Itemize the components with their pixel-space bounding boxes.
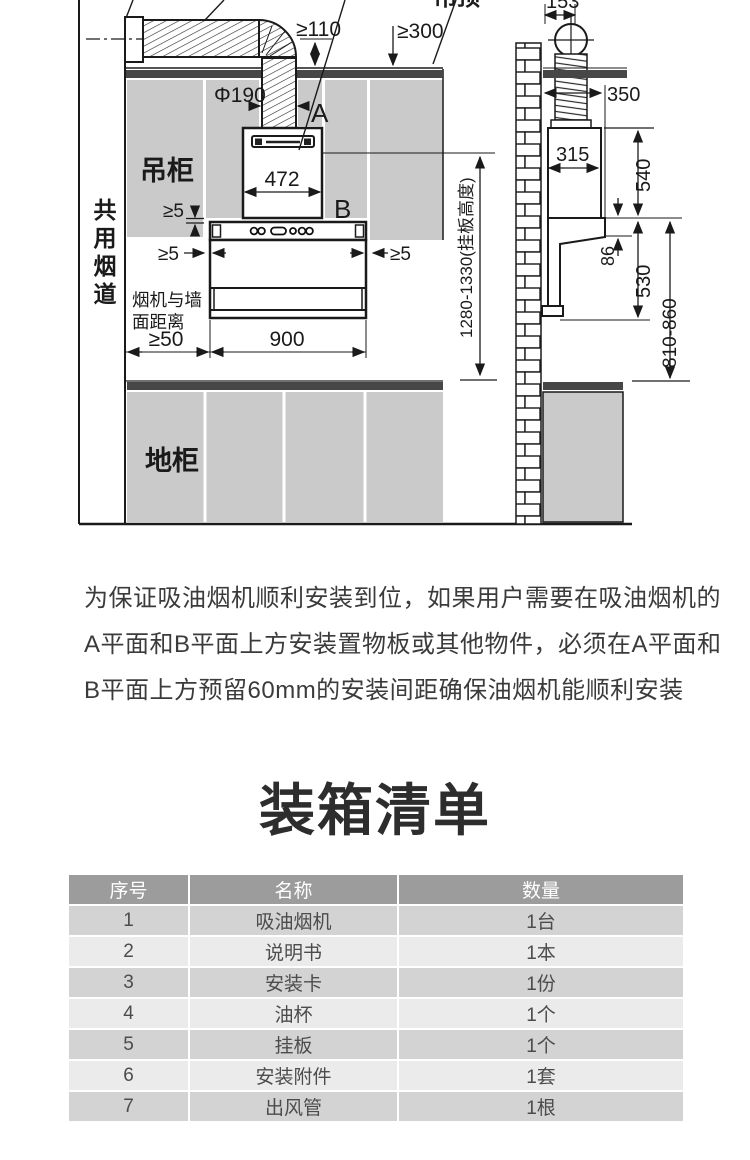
dim-5-left-label: ≥5: [158, 244, 179, 265]
dim-86-label: 86: [598, 246, 618, 266]
note-line-3: B平面上方预留60mm的安装间距确保油烟机能顺利安装: [84, 668, 724, 714]
hood-canopy: [210, 240, 366, 318]
manual-page: 吊顶 ≥110 ≥300 Φ190 A 472 B ≥5 ≥5 ≥5 吊柜 地柜…: [0, 0, 750, 1160]
face-b-label: B: [334, 194, 351, 224]
dim-110-label: ≥110: [296, 18, 341, 41]
cell-qty: 1个: [399, 1030, 683, 1059]
brick-wall: [516, 43, 541, 524]
dim-530-label: 530: [633, 265, 655, 298]
cell-name: 说明书: [190, 937, 397, 966]
note-line-1: 为保证吸油烟机顺利安装到位，如果用户需要在吸油烟机的: [84, 576, 724, 622]
hang-height-label: 1280-1330(挂板高度): [457, 177, 476, 338]
cell-no: 6: [69, 1061, 188, 1090]
cell-no: 3: [69, 968, 188, 997]
installation-note: 为保证吸油烟机顺利安装到位，如果用户需要在吸油烟机的 A平面和B平面上方安装置物…: [84, 576, 724, 714]
table-row: 6 安装附件 1套: [69, 1061, 683, 1090]
note-line-2: A平面和B平面上方安装置物板或其他物件，必须在A平面和: [84, 622, 724, 668]
cell-name: 挂板: [190, 1030, 397, 1059]
hood-control-strip: [210, 222, 366, 240]
packing-list-table: 序号 名称 数量 1 吸油烟机 1台 2 说明书 1本 3 安装卡 1份 4: [67, 873, 685, 1123]
cell-qty: 1个: [399, 999, 683, 1028]
cell-no: 1: [69, 906, 188, 935]
face-a-label: A: [311, 98, 329, 128]
header-name: 名称: [190, 875, 397, 904]
dim-900-label: 900: [269, 328, 304, 351]
dim-5-right-label: ≥5: [390, 244, 411, 265]
cell-qty: 1份: [399, 968, 683, 997]
cell-name: 安装附件: [190, 1061, 397, 1090]
table-row: 7 出风管 1根: [69, 1092, 683, 1121]
dim-190-label: Φ190: [214, 84, 266, 107]
ceiling-bar-side: [543, 70, 627, 78]
ceiling-label: 吊顶: [434, 0, 480, 10]
cell-qty: 1台: [399, 906, 683, 935]
cell-qty: 1套: [399, 1061, 683, 1090]
table-row: 5 挂板 1个: [69, 1030, 683, 1059]
floor-cabinet-label: 地柜: [145, 446, 199, 476]
wall-distance-label-1: 烟机与墙: [132, 290, 202, 310]
cell-no: 5: [69, 1030, 188, 1059]
table-row: 4 油杯 1个: [69, 999, 683, 1028]
table-row: 3 安装卡 1份: [69, 968, 683, 997]
table-row: 2 说明书 1本: [69, 937, 683, 966]
installation-diagram: 吊顶 ≥110 ≥300 Φ190 A 472 B ≥5 ≥5 ≥5 吊柜 地柜…: [0, 0, 750, 545]
shared-flue-label: 共用烟道: [86, 198, 120, 310]
floor-cabinet-side: [543, 382, 623, 522]
dim-315-label: 315: [556, 144, 589, 166]
dim-50-label: ≥50: [149, 328, 184, 351]
exhaust-duct-side: [551, 54, 591, 128]
cell-name: 安装卡: [190, 968, 397, 997]
dim-810-860-label: 810-860: [660, 298, 681, 368]
cell-name: 出风管: [190, 1092, 397, 1121]
cell-qty: 1根: [399, 1092, 683, 1121]
cell-no: 4: [69, 999, 188, 1028]
cell-qty: 1本: [399, 937, 683, 966]
table-header-row: 序号 名称 数量: [69, 875, 683, 904]
dim-153-label: 153: [546, 0, 579, 13]
cell-no: 2: [69, 937, 188, 966]
cell-name: 油杯: [190, 999, 397, 1028]
dim-300-label: ≥300: [397, 20, 444, 43]
dim-5-top-label: ≥5: [163, 201, 184, 222]
table-row: 1 吸油烟机 1台: [69, 906, 683, 935]
dim-540-label: 540: [633, 159, 655, 192]
header-qty: 数量: [399, 875, 683, 904]
cell-name: 吸油烟机: [190, 906, 397, 935]
hanging-cabinet-label: 吊柜: [140, 156, 194, 186]
cell-no: 7: [69, 1092, 188, 1121]
header-no: 序号: [69, 875, 188, 904]
packing-list-title: 装箱清单: [0, 766, 750, 847]
dim-472-label: 472: [264, 168, 299, 191]
dim-350-label: 350: [607, 84, 640, 106]
